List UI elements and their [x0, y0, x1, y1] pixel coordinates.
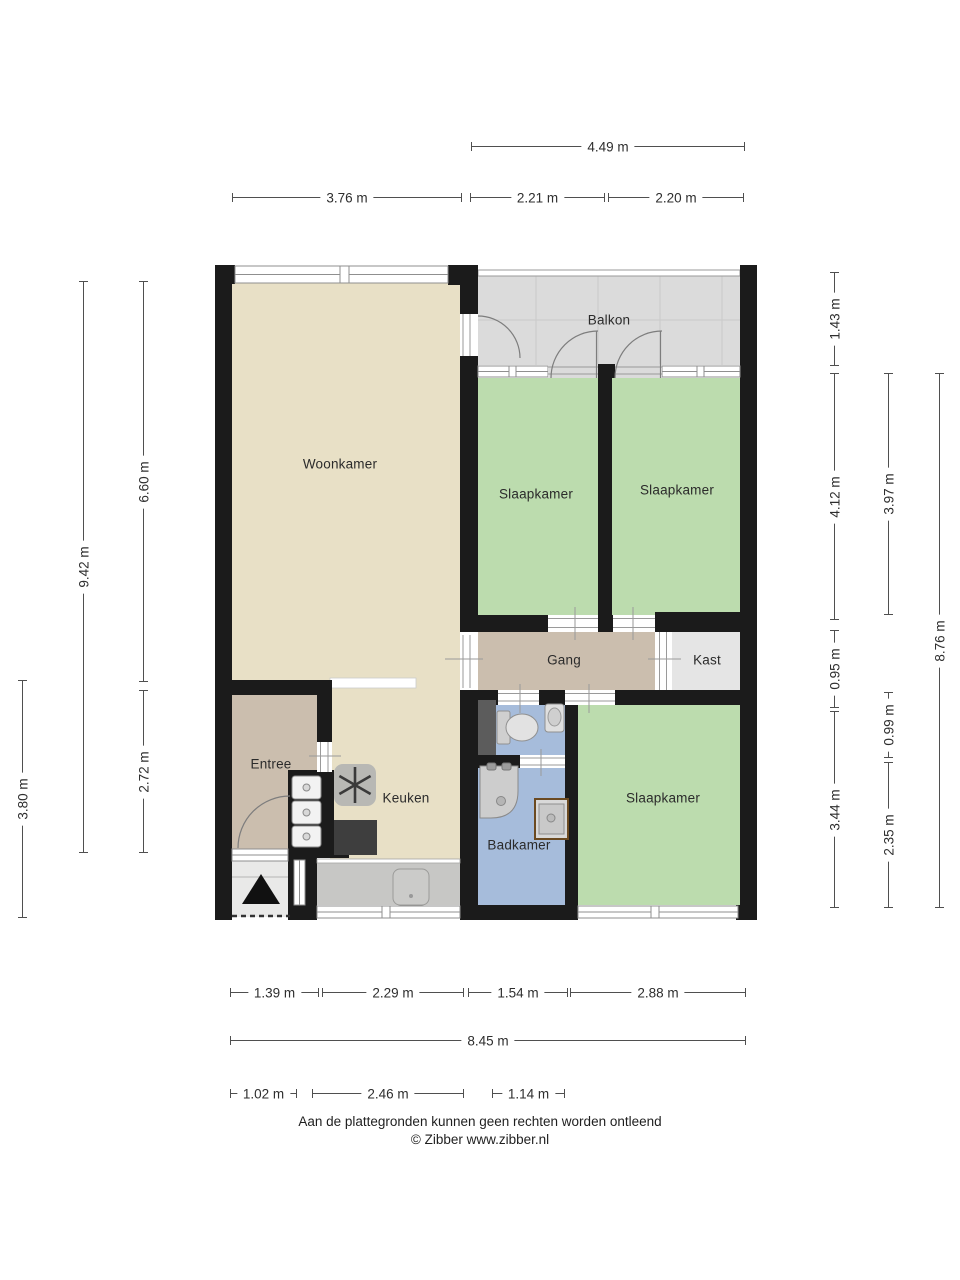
dim-right-badkamer: 2.35 m — [884, 762, 893, 908]
dim-bottom-strip: 2.46 m — [312, 1089, 464, 1098]
copyright-text: © Zibber www.zibber.nl — [0, 1132, 960, 1147]
room-label-balkon: Balkon — [588, 313, 630, 328]
disclaimer-text: Aan de plattegronden kunnen geen rechten… — [0, 1114, 960, 1129]
dim-right-slaapkamer2: 3.97 m — [884, 373, 893, 615]
dim-top-slaapkamer2: 2.20 m — [608, 193, 744, 202]
dim-bottom-total: 8.45 m — [230, 1036, 746, 1045]
room-label-woonkamer: Woonkamer — [303, 457, 377, 472]
dim-bottom-slaapkamer3: 2.88 m — [570, 988, 746, 997]
dim-bottom-entree: 1.39 m — [230, 988, 319, 997]
keuken-strip-divider — [317, 859, 460, 863]
dim-top-slaapkamer1: 2.21 m — [470, 193, 605, 202]
dim-left-woonkamer: 6.60 m — [139, 281, 148, 682]
dim-right-total: 8.76 m — [935, 373, 944, 908]
dim-left-lower: 3.80 m — [18, 680, 27, 918]
strip-appliance — [393, 869, 429, 905]
dim-bottom-badkamer: 1.54 m — [468, 988, 568, 997]
washing-machine — [535, 799, 568, 839]
dim-left-entree: 2.72 m — [139, 690, 148, 853]
room-label-slaapkamer-3: Slaapkamer — [626, 791, 700, 806]
room-label-badkamer: Badkamer — [487, 838, 550, 853]
dim-top-woonkamer: 3.76 m — [232, 193, 462, 202]
dim-bottom-keuken: 2.29 m — [322, 988, 464, 997]
room-label-kast: Kast — [693, 653, 721, 668]
dim-right-balkon: 1.43 m — [830, 272, 839, 366]
floor-utility-strip — [317, 862, 460, 905]
floorplan-page: Balkon Woonkamer Slaapkamer Slaapkamer G… — [0, 0, 960, 1280]
room-divider-opening — [330, 678, 416, 688]
dim-right-toilet: 0.99 m — [884, 692, 893, 758]
dim-right-slaapkamer1: 4.12 m — [830, 373, 839, 620]
room-label-entree: Entree — [251, 757, 292, 772]
dim-bottom-bad-width: 1.14 m — [492, 1089, 565, 1098]
dim-top-total: 4.49 m — [471, 142, 745, 151]
balcony-railing — [478, 270, 740, 276]
dim-bottom-porch: 1.02 m — [230, 1089, 297, 1098]
room-label-keuken: Keuken — [383, 791, 430, 806]
kitchen-counter — [334, 820, 377, 855]
room-label-slaapkamer-1: Slaapkamer — [499, 487, 573, 502]
meter-cupboard-units — [292, 776, 321, 847]
room-label-gang: Gang — [547, 653, 581, 668]
room-label-slaapkamer-2: Slaapkamer — [640, 483, 714, 498]
dim-right-gang: 0.95 m — [830, 630, 839, 708]
shaft — [478, 700, 496, 755]
dim-left-total: 9.42 m — [79, 281, 88, 853]
dim-right-slaapkamer3: 3.44 m — [830, 711, 839, 908]
floor-woonkamer — [232, 283, 460, 683]
hand-basin — [545, 704, 564, 732]
corner-washbasin — [480, 763, 518, 818]
